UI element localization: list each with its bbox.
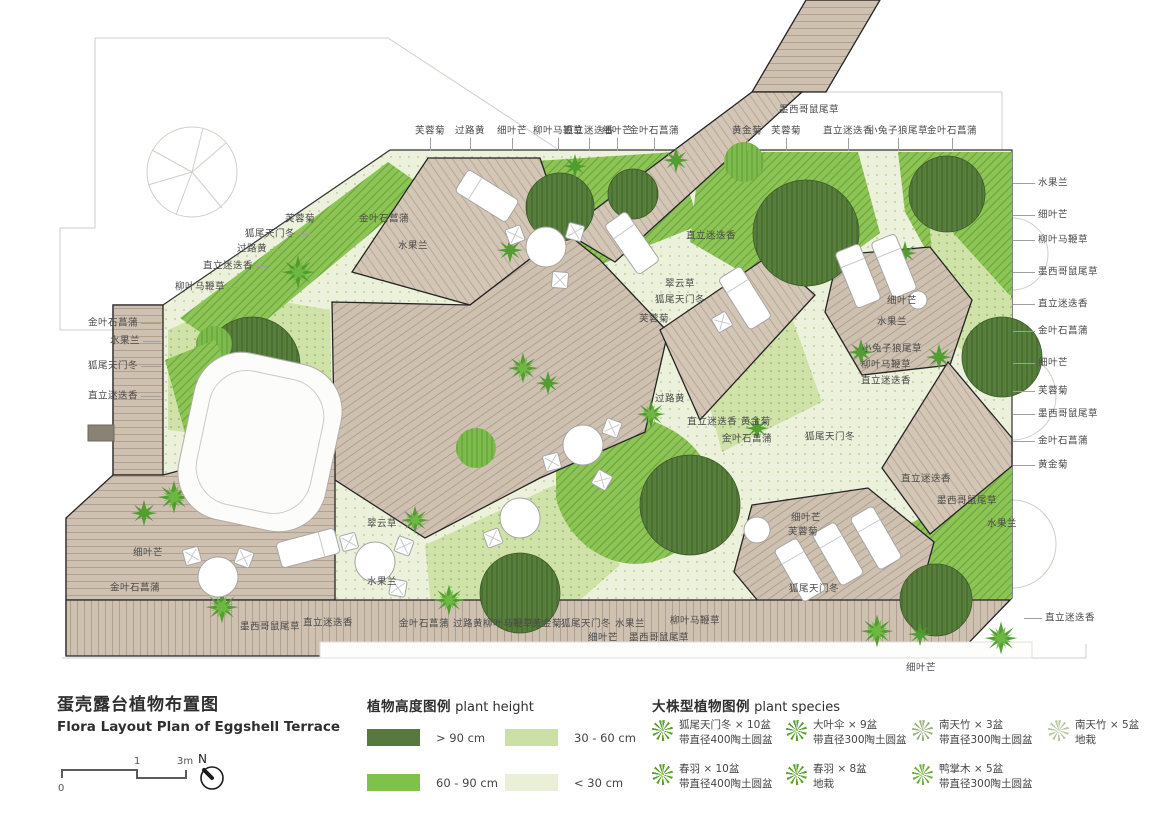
species-text: 鸭掌木 × 5盆带直径300陶土圆盆	[939, 762, 1033, 792]
species-legend-item: 南天竹 × 3盆带直径300陶土圆盆	[912, 718, 1033, 748]
species-note: 带直径400陶土圆盆	[679, 777, 773, 792]
height-legend-item: 30 - 60 cm	[505, 729, 636, 746]
species-legend-item: 狐尾天门冬 × 10盆带直径400陶土圆盆	[652, 718, 773, 748]
plant-burst-icon	[786, 764, 807, 785]
height-legend-item: 60 - 90 cm	[367, 774, 498, 791]
title-block: 蛋壳露台植物布置图 Flora Layout Plan of Eggshell …	[57, 690, 340, 735]
height-label: < 30 cm	[574, 776, 623, 790]
species-note: 带直径300陶土圆盆	[939, 733, 1033, 748]
species-name: 春羽 × 10盆	[679, 762, 773, 777]
bridge-walkway	[752, 0, 880, 92]
height-legend-item: > 90 cm	[367, 729, 485, 746]
species-note: 带直径300陶土圆盆	[813, 733, 907, 748]
species-text: 春羽 × 8盆地栽	[813, 762, 867, 792]
species-legend-item: 鸭掌木 × 5盆带直径300陶土圆盆	[912, 762, 1033, 792]
terrace-plan-drawing	[0, 0, 1160, 690]
species-legend-item: 春羽 × 10盆带直径400陶土圆盆	[652, 762, 773, 792]
species-text: 大叶伞 × 9盆带直径300陶土圆盆	[813, 718, 907, 748]
north-compass	[201, 767, 223, 789]
height-label: 30 - 60 cm	[574, 731, 636, 745]
species-text: 南天竹 × 5盆地栽	[1075, 718, 1139, 748]
species-name: 狐尾天门冬 × 10盆	[679, 718, 773, 733]
species-text: 狐尾天门冬 × 10盆带直径400陶土圆盆	[679, 718, 773, 748]
flora-layout-sheet: 芙蓉菊过路黄细叶芒柳叶马鞭草直立迷迭香细叶芒金叶石菖蒲黄金菊芙蓉菊墨西哥鼠尾草直…	[0, 0, 1160, 820]
species-legend-item: 南天竹 × 5盆地栽	[1048, 718, 1139, 748]
species-note: 带直径300陶土圆盆	[939, 777, 1033, 792]
plant-burst-icon	[652, 720, 673, 741]
sheet-title-zh: 蛋壳露台植物布置图	[57, 690, 340, 715]
species-name: 春羽 × 8盆	[813, 762, 867, 777]
scale-zero: 0	[58, 783, 64, 794]
species-note: 地栽	[1075, 733, 1139, 748]
species-name: 鸭掌木 × 5盆	[939, 762, 1033, 777]
north-needle	[204, 770, 212, 778]
height-swatch	[505, 729, 558, 746]
species-legend-item: 春羽 × 8盆地栽	[786, 762, 867, 792]
species-legend-title-en: plant species	[754, 700, 840, 715]
species-text: 南天竹 × 3盆带直径300陶土圆盆	[939, 718, 1033, 748]
scale-one: 1	[134, 756, 140, 767]
north-letter: N	[198, 752, 207, 766]
species-name: 大叶伞 × 9盆	[813, 718, 907, 733]
height-label: > 90 cm	[436, 731, 485, 745]
height-swatch	[367, 774, 420, 791]
height-legend-title-en: plant height	[455, 700, 534, 715]
plant-burst-icon	[912, 720, 933, 741]
plant-burst-icon	[786, 720, 807, 741]
species-legend-title: 大株型植物图例 plant species	[652, 695, 840, 715]
species-name: 南天竹 × 3盆	[939, 718, 1033, 733]
height-legend-item: < 30 cm	[505, 774, 623, 791]
height-legend-title-zh: 植物高度图例	[367, 699, 451, 715]
plant-burst-icon	[912, 764, 933, 785]
bench	[88, 425, 114, 441]
height-swatch	[367, 729, 420, 746]
sheet-title-en: Flora Layout Plan of Eggshell Terrace	[57, 719, 340, 735]
bottom-paving	[320, 642, 1032, 658]
plant-burst-icon	[1048, 720, 1069, 741]
species-note: 带直径400陶土圆盆	[679, 733, 773, 748]
plant-burst-icon	[652, 764, 673, 785]
species-text: 春羽 × 10盆带直径400陶土圆盆	[679, 762, 773, 792]
species-legend-item: 大叶伞 × 9盆带直径300陶土圆盆	[786, 718, 907, 748]
height-swatch	[505, 774, 558, 791]
species-name: 南天竹 × 5盆	[1075, 718, 1139, 733]
scale-three: 3m	[177, 756, 193, 767]
species-note: 地栽	[813, 777, 867, 792]
height-label: 60 - 90 cm	[436, 776, 498, 790]
height-legend-title: 植物高度图例 plant height	[367, 695, 534, 715]
species-legend-title-zh: 大株型植物图例	[652, 699, 750, 715]
